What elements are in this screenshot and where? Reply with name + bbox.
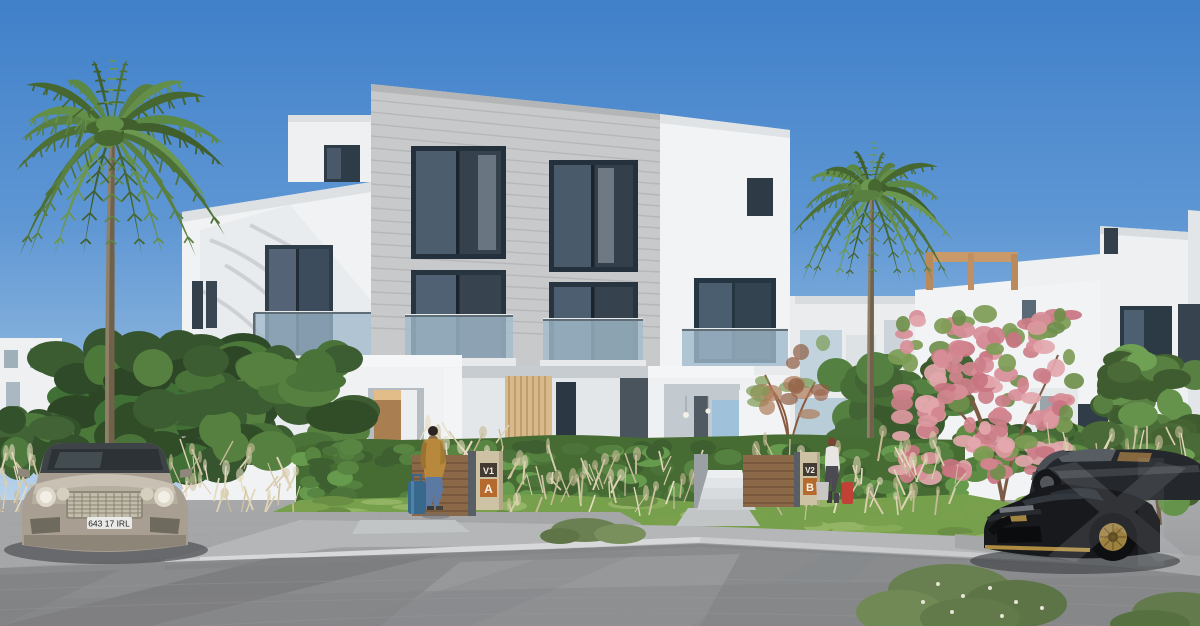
svg-text:B: B bbox=[806, 482, 814, 494]
svg-text:V1: V1 bbox=[483, 466, 494, 476]
svg-text:A: A bbox=[484, 482, 493, 496]
svg-text:643 17 IRL: 643 17 IRL bbox=[88, 519, 130, 529]
svg-text:V2: V2 bbox=[805, 466, 815, 475]
